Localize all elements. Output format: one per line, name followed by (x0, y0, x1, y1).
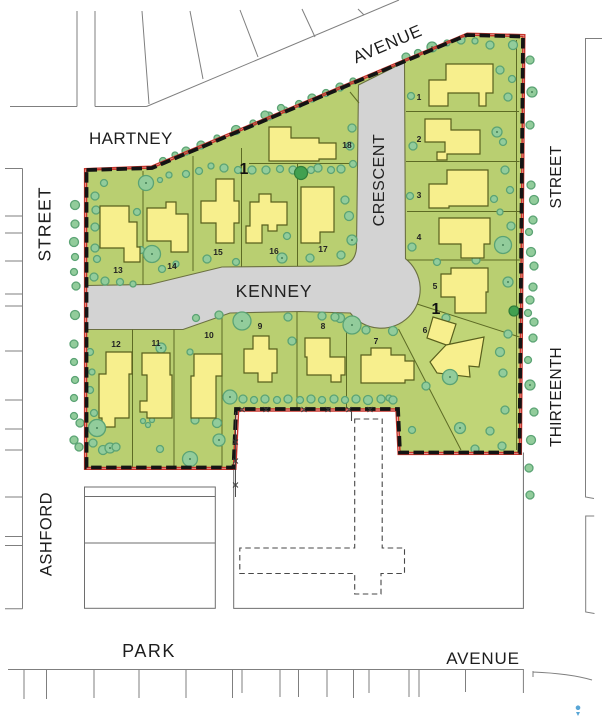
svg-text:6: 6 (423, 325, 428, 335)
svg-text:12: 12 (111, 339, 121, 349)
svg-text:7: 7 (374, 336, 379, 346)
svg-text:1: 1 (432, 301, 441, 318)
svg-text:2: 2 (417, 134, 422, 144)
svg-text:11: 11 (152, 338, 161, 348)
svg-text:18: 18 (342, 140, 352, 150)
svg-text:10: 10 (204, 330, 214, 340)
svg-text:CRESCENT: CRESCENT (371, 134, 388, 227)
svg-text:1: 1 (240, 161, 249, 178)
svg-text:STREET: STREET (548, 145, 565, 208)
svg-text:14: 14 (167, 261, 177, 271)
svg-text:8: 8 (321, 321, 326, 331)
svg-text:5: 5 (433, 281, 438, 291)
svg-text:17: 17 (318, 244, 328, 254)
svg-text:THIRTEENTH: THIRTEENTH (548, 347, 565, 447)
svg-text:STREET: STREET (35, 186, 55, 261)
svg-text:4: 4 (417, 232, 422, 242)
svg-text:KENNEY: KENNEY (236, 281, 313, 301)
svg-text:HARTNEY: HARTNEY (89, 129, 173, 148)
svg-text:1: 1 (417, 92, 422, 102)
svg-text:AVENUE: AVENUE (446, 649, 519, 668)
svg-text:16: 16 (269, 246, 279, 256)
svg-text:ASHFORD: ASHFORD (37, 492, 55, 576)
svg-text:3: 3 (417, 190, 422, 200)
svg-text:9: 9 (258, 321, 263, 331)
svg-text:13: 13 (113, 265, 123, 275)
svg-text:15: 15 (213, 247, 223, 257)
svg-text:PARK: PARK (122, 641, 176, 661)
